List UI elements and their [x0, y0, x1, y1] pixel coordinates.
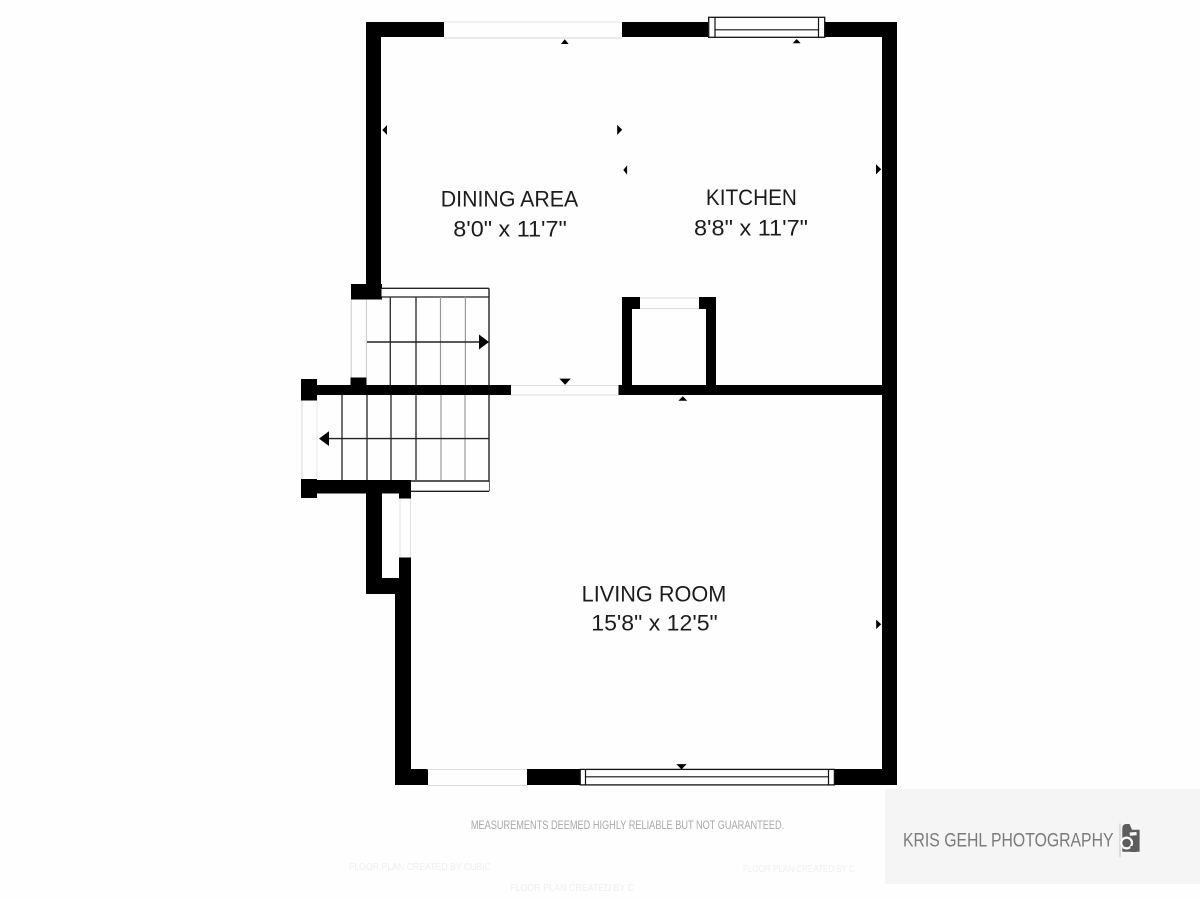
svg-text:FLOOR PLAN CREATED BY C: FLOOR PLAN CREATED BY C: [743, 863, 855, 875]
svg-text:DINING AREA: DINING AREA: [441, 187, 579, 212]
svg-text:LIVING ROOM: LIVING ROOM: [582, 582, 727, 607]
svg-text:MEASUREMENTS DEEMED HIGHLY REL: MEASUREMENTS DEEMED HIGHLY RELIABLE BUT …: [471, 818, 784, 832]
svg-text:KRIS GEHL PHOTOGRAPHY: KRIS GEHL PHOTOGRAPHY: [903, 830, 1114, 852]
svg-text:KITCHEN: KITCHEN: [706, 185, 797, 210]
svg-text:FLOOR PLAN CREATED BY C: FLOOR PLAN CREATED BY C: [510, 882, 634, 894]
svg-text:8'0" x 11'7": 8'0" x 11'7": [453, 217, 567, 242]
svg-text:8'8" x 11'7": 8'8" x 11'7": [694, 215, 808, 240]
svg-text:15'8" x 12'5": 15'8" x 12'5": [591, 610, 718, 635]
svg-text:FLOOR PLAN CREATED BY CUBIC: FLOOR PLAN CREATED BY CUBIC: [349, 861, 491, 873]
